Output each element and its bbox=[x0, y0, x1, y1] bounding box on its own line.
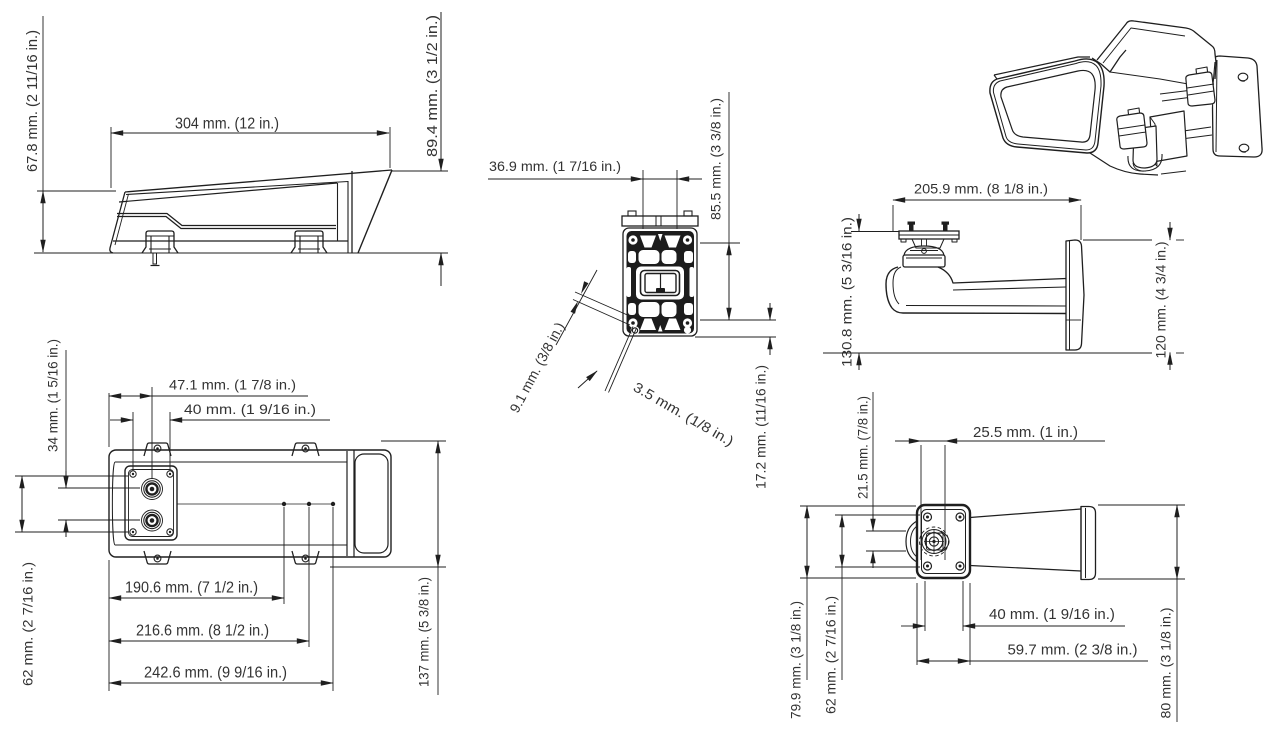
svg-text:17.2 mm. (11/16 in.): 17.2 mm. (11/16 in.) bbox=[753, 365, 769, 489]
svg-text:80 mm. (3 1/8 in.): 80 mm. (3 1/8 in.) bbox=[1159, 608, 1174, 719]
svg-text:59.7 mm. (2 3/8 in.): 59.7 mm. (2 3/8 in.) bbox=[1007, 641, 1137, 658]
svg-text:67.8 mm. (2 11/16 in.): 67.8 mm. (2 11/16 in.) bbox=[25, 30, 41, 172]
svg-text:62 mm. (2 7/16 in.): 62 mm. (2 7/16 in.) bbox=[21, 562, 36, 686]
svg-text:304 mm. (12 in.): 304 mm. (12 in.) bbox=[175, 116, 279, 133]
svg-text:34 mm. (1 5/16 in.): 34 mm. (1 5/16 in.) bbox=[46, 339, 61, 452]
svg-text:40 mm. (1 9/16 in.): 40 mm. (1 9/16 in.) bbox=[184, 401, 316, 417]
svg-text:120 mm. (4 3/4 in.): 120 mm. (4 3/4 in.) bbox=[1153, 242, 1169, 359]
svg-text:79.9 mm. (3 1/8 in.): 79.9 mm. (3 1/8 in.) bbox=[789, 601, 804, 719]
svg-text:47.1 mm. (1 7/8 in.): 47.1 mm. (1 7/8 in.) bbox=[169, 377, 296, 393]
svg-text:130.8 mm. (5 3/16 in.): 130.8 mm. (5 3/16 in.) bbox=[839, 217, 855, 367]
svg-text:216.6 mm. (8 1/2 in.): 216.6 mm. (8 1/2 in.) bbox=[136, 623, 269, 640]
svg-text:62 mm. (2 7/16 in.): 62 mm. (2 7/16 in.) bbox=[824, 596, 839, 714]
svg-text:85.5 mm. (3 3/8 in.): 85.5 mm. (3 3/8 in.) bbox=[708, 98, 724, 220]
svg-text:40 mm. (1 9/16 in.): 40 mm. (1 9/16 in.) bbox=[989, 606, 1115, 623]
svg-text:89.4 mm. (3 1/2 in.): 89.4 mm. (3 1/2 in.) bbox=[425, 15, 441, 157]
svg-text:25.5 mm. (1 in.): 25.5 mm. (1 in.) bbox=[973, 424, 1078, 441]
svg-text:36.9 mm. (1 7/16 in.): 36.9 mm. (1 7/16 in.) bbox=[489, 158, 621, 174]
svg-text:137 mm. (5 3/8 in.): 137 mm. (5 3/8 in.) bbox=[417, 577, 432, 687]
svg-text:190.6 mm. (7 1/2 in.): 190.6 mm. (7 1/2 in.) bbox=[125, 580, 258, 597]
svg-text:205.9 mm. (8 1/8 in.): 205.9 mm. (8 1/8 in.) bbox=[914, 181, 1048, 197]
svg-text:242.6 mm. (9 9/16 in.): 242.6 mm. (9 9/16 in.) bbox=[144, 665, 287, 682]
svg-text:21.5 mm. (7/8 in.): 21.5 mm. (7/8 in.) bbox=[856, 396, 871, 499]
